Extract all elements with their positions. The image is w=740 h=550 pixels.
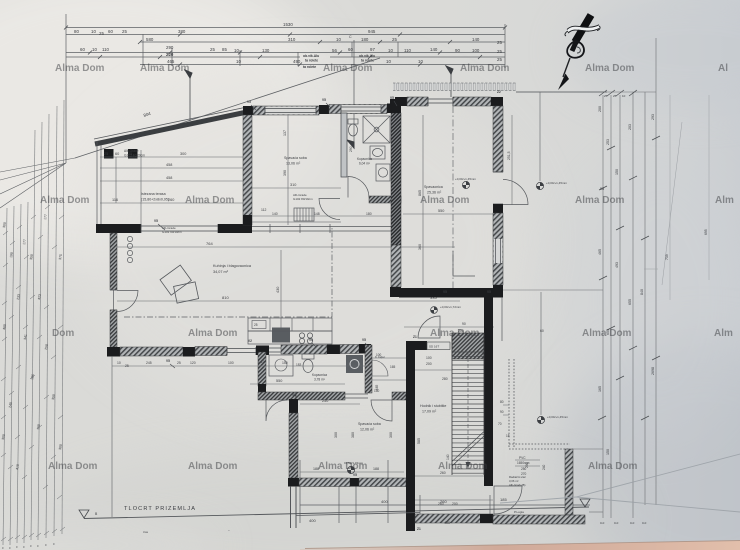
svg-text:165: 165: [375, 384, 379, 390]
svg-text:+0,00/+1,45mm: +0,00/+1,45mm: [547, 415, 569, 419]
svg-text:655: 655: [628, 299, 632, 305]
svg-text:390: 390: [283, 170, 287, 176]
svg-text:140: 140: [472, 37, 480, 42]
svg-text:25: 25: [497, 40, 502, 45]
svg-text:0-0: 0-0: [614, 521, 619, 525]
svg-text:Alma Dom: Alma Dom: [48, 461, 98, 472]
svg-text:400: 400: [444, 521, 450, 525]
svg-text:Alma Dom: Alma Dom: [460, 63, 510, 74]
svg-text:183: 183: [296, 363, 302, 367]
svg-text:25: 25: [99, 31, 104, 36]
svg-text:245: 245: [146, 361, 152, 365]
svg-text:ob.vik.Alu: ob.vik.Alu: [303, 54, 319, 58]
svg-text:260: 260: [438, 502, 444, 506]
svg-text:10: 10: [92, 47, 97, 52]
svg-text:Alm: Alm: [715, 195, 734, 206]
svg-text:100: 100: [228, 361, 234, 365]
svg-text:290: 290: [525, 462, 529, 468]
svg-text:0-0: 0-0: [630, 521, 635, 525]
svg-text:280: 280: [442, 377, 448, 381]
svg-text:60: 60: [115, 152, 119, 156]
svg-text:140: 140: [272, 212, 278, 216]
svg-text:25: 25: [104, 152, 108, 156]
svg-text:V5: V5: [443, 290, 447, 294]
svg-text:97: 97: [370, 47, 375, 52]
svg-text:764: 764: [206, 241, 213, 246]
svg-text:Alma Dom: Alma Dom: [420, 195, 470, 206]
svg-text:Istezana terasa: Istezana terasa: [141, 192, 166, 196]
svg-text:10: 10: [336, 37, 341, 42]
svg-text:150: 150: [615, 169, 619, 175]
svg-text:165: 165: [598, 386, 602, 392]
svg-text:V5: V5: [247, 100, 251, 104]
svg-text:430: 430: [276, 287, 280, 293]
svg-text:695: 695: [704, 229, 708, 235]
svg-text:Alma Dom: Alma Dom: [185, 195, 235, 206]
svg-text:0-0: 0-0: [600, 521, 605, 525]
svg-text:290: 290: [349, 146, 353, 152]
svg-text:80: 80: [500, 400, 504, 404]
svg-text:10: 10: [91, 29, 96, 34]
svg-text:2698: 2698: [651, 367, 655, 375]
svg-text:25: 25: [497, 49, 502, 54]
svg-text:+0,00/+1,45mm: +0,00/+1,45mm: [546, 181, 568, 185]
svg-text:34,07 m²: 34,07 m²: [213, 270, 229, 274]
svg-text:300: 300: [180, 152, 186, 156]
svg-text:100: 100: [472, 48, 480, 53]
svg-text:110: 110: [102, 47, 110, 52]
svg-text:203: 203: [628, 124, 632, 130]
svg-text:Z1: Z1: [413, 335, 417, 339]
svg-text:25: 25: [392, 37, 397, 42]
svg-text:253: 253: [606, 139, 610, 145]
svg-text:240: 240: [542, 464, 546, 470]
svg-text:251,5: 251,5: [507, 151, 511, 160]
svg-text:C: C: [349, 35, 352, 39]
svg-text:17,09 m²: 17,09 m²: [422, 410, 437, 414]
svg-text:180: 180: [361, 37, 369, 42]
svg-text:200: 200: [452, 502, 458, 506]
svg-text:810: 810: [222, 295, 229, 300]
svg-text:Al: Al: [718, 63, 728, 74]
svg-text:V5: V5: [154, 219, 158, 223]
svg-text:180: 180: [366, 212, 372, 216]
svg-text:Z2: Z2: [497, 90, 501, 94]
svg-text:380: 380: [178, 29, 186, 34]
svg-text:Alma Dom: Alma Dom: [438, 461, 488, 472]
svg-text:Spavaća soba: Spavaća soba: [284, 156, 307, 160]
svg-text:90: 90: [455, 48, 460, 53]
svg-text:112: 112: [261, 208, 267, 212]
svg-text:Kupaonica: Kupaonica: [357, 157, 372, 161]
svg-text:G103 40/20cm: G103 40/20cm: [124, 154, 145, 158]
svg-text:1530: 1530: [283, 22, 293, 27]
svg-text:0-0: 0-0: [642, 521, 647, 525]
svg-text:220: 220: [166, 52, 174, 57]
svg-text:310: 310: [290, 183, 296, 187]
svg-text:3,78 m²: 3,78 m²: [314, 378, 325, 382]
svg-text:25: 25: [604, 94, 608, 98]
svg-text:110: 110: [404, 48, 412, 53]
svg-text:V5: V5: [322, 98, 326, 102]
svg-text:185: 185: [500, 497, 507, 502]
svg-text:10: 10: [418, 59, 423, 64]
svg-text:70: 70: [498, 422, 502, 426]
svg-text:Alma Dom: Alma Dom: [323, 63, 373, 74]
svg-text:V5: V5: [309, 338, 313, 342]
svg-text:Alma Dom: Alma Dom: [40, 195, 90, 206]
svg-text:200: 200: [426, 362, 432, 366]
svg-text:310: 310: [288, 37, 296, 42]
svg-text:1,10: 1,10: [258, 360, 265, 364]
svg-text:100: 100: [426, 356, 432, 360]
svg-text:Dom: Dom: [52, 328, 74, 339]
svg-text:Kupaonica: Kupaonica: [312, 373, 327, 377]
svg-text:250: 250: [322, 399, 328, 403]
svg-text:60: 60: [108, 29, 113, 34]
svg-text:Alma Dom: Alma Dom: [140, 63, 190, 74]
svg-text:130: 130: [262, 48, 270, 53]
svg-text:Spavaonica: Spavaonica: [424, 185, 443, 189]
svg-text:165: 165: [390, 365, 396, 369]
svg-text:458: 458: [166, 163, 172, 167]
svg-text:Alma Dom: Alma Dom: [582, 328, 632, 339]
svg-text:TLOCRT PRIZEMLJA: TLOCRT PRIZEMLJA: [124, 506, 196, 512]
svg-text:840: 840: [640, 289, 644, 295]
svg-text:tros: tros: [143, 530, 149, 534]
svg-text:60: 60: [348, 47, 353, 52]
svg-text:10: 10: [386, 59, 391, 64]
svg-text:Alma Dom: Alma Dom: [430, 328, 480, 339]
svg-text:~: ~: [228, 528, 230, 532]
svg-text:465: 465: [598, 249, 602, 255]
svg-text:V5: V5: [487, 290, 491, 294]
svg-text:585: 585: [417, 438, 421, 444]
svg-text:140: 140: [430, 47, 438, 52]
svg-text:6,04 m²: 6,04 m²: [359, 162, 370, 166]
svg-text:Alma Dom: Alma Dom: [575, 195, 625, 206]
svg-text:293: 293: [651, 114, 655, 120]
svg-text:V2: V2: [248, 339, 252, 343]
svg-text:Alma Dom: Alma Dom: [55, 63, 105, 74]
svg-text:90: 90: [462, 322, 466, 326]
svg-text:+0,00/+1,45mm: +0,00/+1,45mm: [455, 177, 477, 181]
svg-text:Alma Dom: Alma Dom: [188, 328, 238, 339]
svg-text:580: 580: [146, 37, 154, 42]
svg-text:(15,80+2x8x0,95): (15,80+2x8x0,95): [141, 198, 169, 202]
svg-text:60: 60: [80, 47, 85, 52]
svg-text:360: 360: [418, 244, 422, 250]
svg-text:290: 290: [166, 45, 174, 50]
svg-text:300: 300: [389, 432, 393, 438]
svg-text:300: 300: [334, 432, 338, 438]
svg-text:458: 458: [166, 176, 172, 180]
svg-text:200: 200: [598, 106, 602, 112]
svg-text:Alma Dom: Alma Dom: [588, 461, 638, 472]
svg-text:56: 56: [332, 48, 337, 53]
svg-text:25: 25: [210, 47, 215, 52]
svg-text:490: 490: [293, 59, 301, 64]
svg-text:ta rolete: ta rolete: [303, 65, 316, 69]
svg-text:25: 25: [613, 94, 617, 98]
svg-text:Spavaća soba: Spavaća soba: [358, 422, 381, 426]
svg-text:Alm: Alm: [714, 328, 733, 339]
svg-text:100: 100: [376, 353, 382, 357]
svg-text:V5: V5: [353, 473, 357, 477]
svg-text:493: 493: [615, 262, 619, 268]
svg-text:G103 90/19cm: G103 90/19cm: [162, 230, 182, 234]
svg-text:188: 188: [373, 467, 379, 471]
svg-text:Kuhinja i blagovaonica: Kuhinja i blagovaonica: [213, 264, 252, 268]
svg-text:60: 60: [540, 329, 544, 333]
svg-text:V5: V5: [362, 338, 366, 342]
svg-text:V5: V5: [600, 187, 604, 191]
svg-text:85: 85: [222, 47, 227, 52]
svg-text:80: 80: [74, 29, 79, 34]
svg-text:Z1: Z1: [417, 527, 421, 531]
svg-text:137: 137: [283, 130, 287, 136]
svg-text:10: 10: [234, 48, 239, 53]
svg-text:116: 116: [112, 198, 118, 202]
svg-text:148: 148: [314, 212, 320, 216]
svg-text:Alb-Grade: Alb-Grade: [124, 149, 139, 153]
svg-text:400: 400: [381, 499, 388, 504]
svg-text:Alma Dom: Alma Dom: [585, 63, 635, 74]
svg-text:739: 739: [665, 254, 669, 260]
svg-text:G102 80/19cm: G102 80/19cm: [293, 197, 313, 201]
svg-text:120: 120: [190, 361, 196, 365]
svg-text:25: 25: [254, 323, 258, 327]
svg-text:550: 550: [276, 379, 282, 383]
svg-text:380: 380: [351, 432, 355, 438]
svg-text:550: 550: [438, 209, 444, 213]
svg-text:12,06 m²: 12,06 m²: [360, 428, 375, 432]
svg-text:V5: V5: [390, 96, 394, 100]
svg-text:P.Logia: P.Logia: [514, 510, 524, 514]
svg-text:Hodnik i stubište: Hodnik i stubište: [420, 404, 446, 408]
svg-text:Alma Dom: Alma Dom: [318, 461, 368, 472]
svg-text:945: 945: [368, 29, 376, 34]
svg-text:150: 150: [606, 449, 610, 455]
svg-text:25: 25: [497, 57, 502, 62]
svg-text:SD 16T: SD 16T: [429, 345, 439, 349]
svg-text:90: 90: [500, 410, 504, 414]
svg-text:10: 10: [117, 361, 121, 365]
svg-text:10: 10: [236, 59, 241, 64]
svg-text:10: 10: [622, 94, 626, 98]
svg-text:140: 140: [446, 454, 450, 460]
svg-text:ob.vik.Alu: ob.vik.Alu: [359, 54, 375, 58]
svg-text:Alma Dom: Alma Dom: [188, 461, 238, 472]
svg-text:+0,00/+1,72mm: +0,00/+1,72mm: [440, 305, 462, 309]
svg-text:400: 400: [309, 518, 316, 523]
svg-text:V5: V5: [166, 359, 170, 363]
svg-text:Alb-Grade(B): Alb-Grade(B): [509, 483, 526, 487]
svg-text:25: 25: [177, 361, 181, 365]
svg-text:PVC: PVC: [519, 456, 526, 460]
svg-text:25: 25: [122, 29, 127, 34]
svg-text:V5: V5: [292, 393, 296, 397]
svg-text:25: 25: [125, 364, 129, 368]
svg-text:10: 10: [388, 48, 393, 53]
svg-text:ta rolete: ta rolete: [305, 59, 318, 63]
svg-text:15: 15: [506, 434, 510, 438]
svg-text:25,36 m²: 25,36 m²: [427, 191, 442, 195]
svg-text:150: 150: [282, 361, 288, 365]
